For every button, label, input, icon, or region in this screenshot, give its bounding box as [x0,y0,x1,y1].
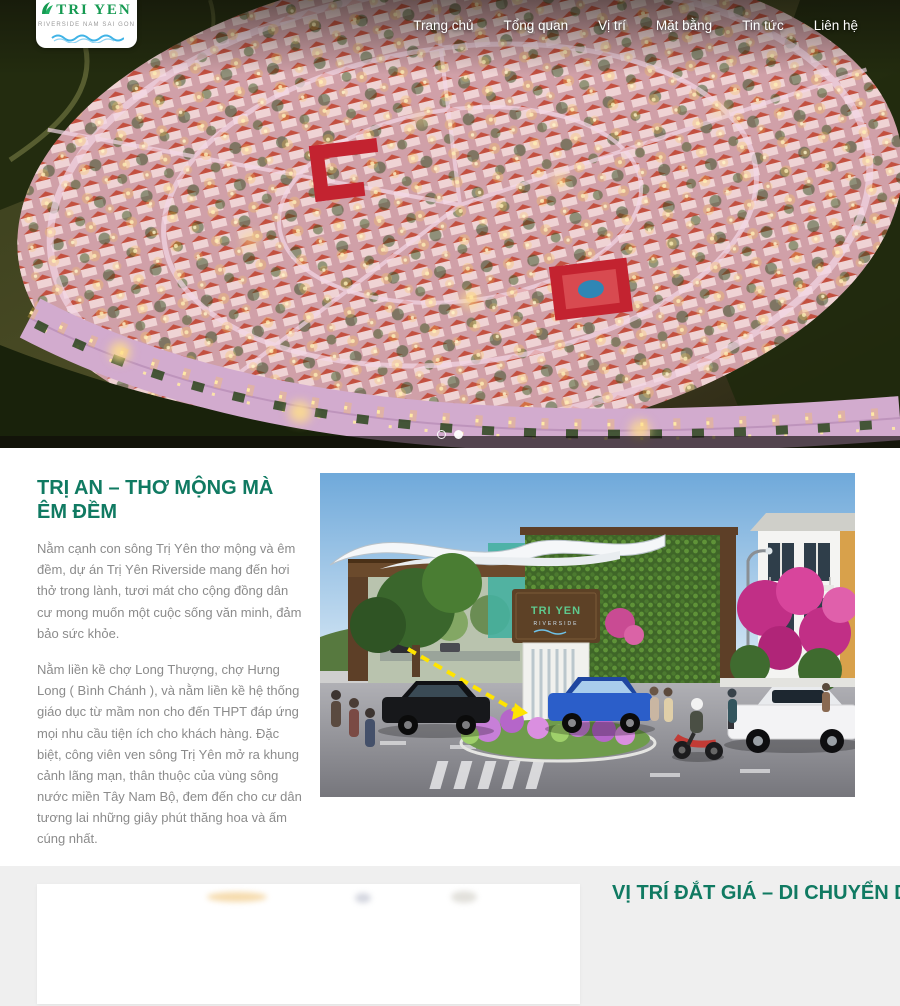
brand-tagline: RIVERSIDE NAM SAI GON [38,22,135,28]
about-paragraph-2: Nằm liền kề chợ Long Thượng, chợ Hưng Lo… [37,659,303,850]
map-preview-fragment [451,891,477,903]
slider-dot-2-active[interactable] [454,430,463,439]
slider-dots [437,430,463,439]
nav-item-vi-tri[interactable]: Vị trí [598,18,626,33]
slider-dot-1[interactable] [437,430,446,439]
gate-sign-title: TRI YEN [531,605,581,617]
main-nav: Trang chủ Tổng quan Vị trí Mặt bằng Tin … [413,0,858,50]
hero-slider [0,0,900,448]
about-paragraph-1: Nằm cạnh con sông Trị Yên thơ mộng và êm… [37,538,303,644]
location-section: VỊ TRÍ ĐẮT GIÁ – DI CHUYỂN DỄ [0,866,900,1006]
about-title: TRỊ AN – THƠ MỘNG MÀ ÊM ĐỀM [37,476,303,524]
nav-item-mat-bang[interactable]: Mặt bằng [656,18,712,33]
location-map-card [37,884,580,1004]
nav-item-trang-chu[interactable]: Trang chủ [413,18,473,33]
gate-sign-subtitle: RIVERSIDE [534,621,579,627]
nav-item-tong-quan[interactable]: Tổng quan [504,18,569,33]
entrance-photo: TRI YEN RIVERSIDE [320,473,855,797]
brand-name: TRI YEN [56,3,132,18]
map-preview-fragment [355,893,371,903]
about-section: TRỊ AN – THƠ MỘNG MÀ ÊM ĐỀM Nằm cạnh con… [0,448,900,866]
site-logo[interactable]: TRI YEN RIVERSIDE NAM SAI GON [36,0,137,48]
logo-wave-icon [50,30,124,48]
nav-item-lien-he[interactable]: Liên hệ [814,18,858,33]
hero-slide-image [0,0,900,448]
site-header: TRI YEN RIVERSIDE NAM SAI GON Trang chủ … [0,0,900,50]
location-title: VỊ TRÍ ĐẮT GIÁ – DI CHUYỂN DỄ [612,882,900,905]
leaf-logo-icon [41,1,54,20]
map-preview-fragment [207,892,267,902]
nav-item-tin-tuc[interactable]: Tin tức [742,18,784,33]
